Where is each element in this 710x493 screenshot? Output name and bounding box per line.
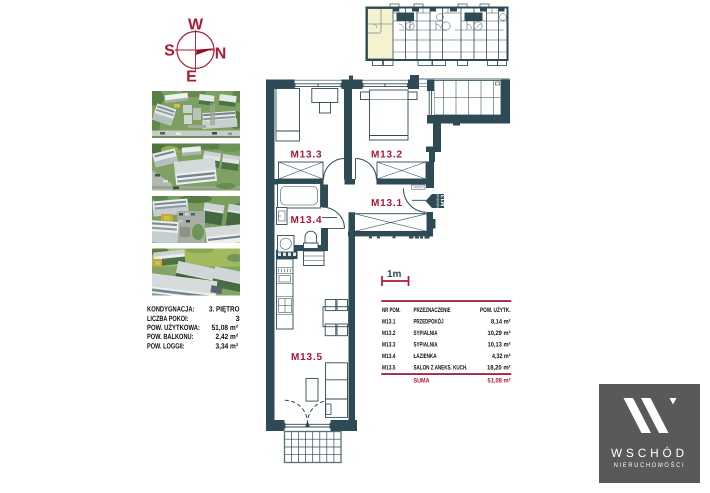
svg-text:NIERUCHOMOŚCI: NIERUCHOMOŚCI bbox=[614, 461, 686, 469]
svg-text:M13.3: M13.3 bbox=[382, 342, 396, 349]
svg-text:51,08 m²: 51,08 m² bbox=[488, 378, 511, 385]
svg-text:LICZBA POKOI:: LICZBA POKOI: bbox=[147, 314, 189, 323]
svg-text:PRZEDPOKÓJ: PRZEDPOKÓJ bbox=[414, 318, 444, 326]
svg-text:10,29 m²: 10,29 m² bbox=[488, 330, 511, 337]
svg-text:NR POM.: NR POM. bbox=[382, 307, 401, 314]
svg-text:M13.2: M13.2 bbox=[371, 150, 402, 161]
svg-text:M13.4: M13.4 bbox=[382, 353, 396, 360]
svg-text:M13.4: M13.4 bbox=[291, 215, 322, 226]
svg-text:4,32 m²: 4,32 m² bbox=[492, 353, 511, 360]
svg-text:KONDYGNACJA:: KONDYGNACJA: bbox=[147, 305, 195, 314]
svg-text:1m: 1m bbox=[387, 269, 402, 280]
svg-text:M13.2: M13.2 bbox=[382, 330, 396, 337]
svg-text:51,08 m²: 51,08 m² bbox=[212, 323, 239, 332]
svg-text:M13.5: M13.5 bbox=[291, 352, 322, 363]
svg-text:2,42 m²: 2,42 m² bbox=[216, 332, 239, 341]
svg-text:POW. LOGGII:: POW. LOGGII: bbox=[147, 341, 185, 350]
svg-text:SYPIALNIA: SYPIALNIA bbox=[414, 330, 438, 337]
svg-text:M13.1: M13.1 bbox=[382, 319, 396, 326]
svg-text:WSCHÓD: WSCHÓD bbox=[611, 446, 688, 460]
svg-text:M13.5: M13.5 bbox=[382, 365, 396, 372]
svg-text:M13.1: M13.1 bbox=[371, 198, 402, 209]
svg-text:N: N bbox=[215, 46, 227, 63]
svg-text:S: S bbox=[164, 43, 175, 60]
svg-text:E: E bbox=[186, 69, 197, 86]
svg-text:M13.3: M13.3 bbox=[291, 150, 322, 161]
svg-text:WEJŚCIE: WEJŚCIE bbox=[436, 193, 440, 207]
svg-text:M13: M13 bbox=[440, 194, 447, 206]
svg-text:10,13 m²: 10,13 m² bbox=[488, 342, 511, 349]
svg-text:3: 3 bbox=[236, 314, 240, 323]
svg-text:W: W bbox=[188, 17, 204, 34]
svg-text:3,34 m²: 3,34 m² bbox=[216, 341, 239, 350]
svg-text:POW. UŻYTKOWA:: POW. UŻYTKOWA: bbox=[147, 323, 200, 332]
svg-text:18,20 m²: 18,20 m² bbox=[487, 365, 511, 372]
svg-text:POW. UŻYTK.: POW. UŻYTK. bbox=[480, 306, 511, 314]
svg-text:ŁAZIENKA: ŁAZIENKA bbox=[414, 353, 437, 360]
svg-text:SALON Z ANEKS. KUCH.: SALON Z ANEKS. KUCH. bbox=[414, 365, 468, 372]
svg-text:POW. BALKONU:: POW. BALKONU: bbox=[147, 332, 194, 341]
svg-text:3. PIĘTRO: 3. PIĘTRO bbox=[209, 305, 240, 314]
svg-text:SYPIALNIA: SYPIALNIA bbox=[414, 342, 438, 349]
svg-text:SUMA: SUMA bbox=[414, 378, 430, 385]
svg-text:8,14 m²: 8,14 m² bbox=[491, 319, 511, 326]
svg-text:PRZEZNACZENIE: PRZEZNACZENIE bbox=[414, 307, 451, 314]
